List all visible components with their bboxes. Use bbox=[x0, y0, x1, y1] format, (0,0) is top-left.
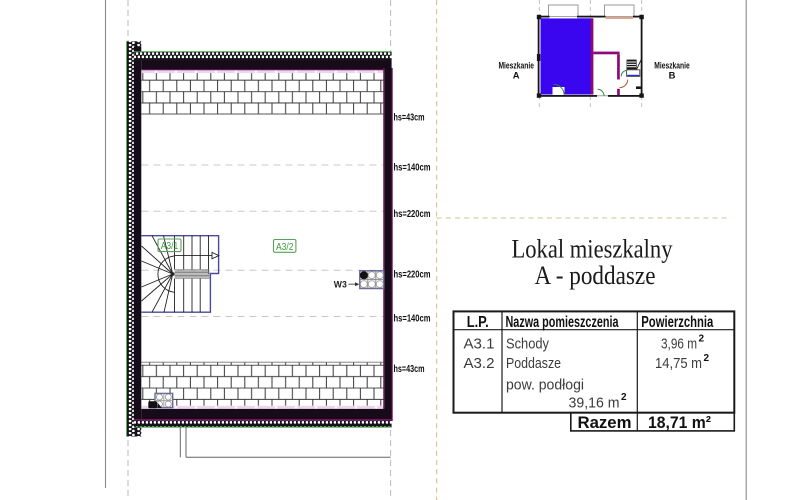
svg-text:hs=43cm: hs=43cm bbox=[394, 364, 425, 375]
svg-text:Nazwa pomieszczenia: Nazwa pomieszczenia bbox=[506, 314, 619, 331]
svg-text:2: 2 bbox=[621, 392, 627, 403]
svg-text:14,75 m: 14,75 m bbox=[655, 355, 702, 372]
svg-text:2: 2 bbox=[699, 334, 705, 345]
svg-text:A - poddasze: A - poddasze bbox=[535, 261, 656, 290]
svg-text:Lokal mieszkalny: Lokal mieszkalny bbox=[512, 234, 673, 263]
svg-text:hs=220cm: hs=220cm bbox=[394, 270, 431, 281]
svg-text:B: B bbox=[669, 70, 676, 81]
svg-text:hs=140cm: hs=140cm bbox=[394, 314, 431, 325]
svg-text:Schody: Schody bbox=[506, 336, 549, 353]
svg-text:W3: W3 bbox=[334, 279, 347, 290]
svg-text:Poddasze: Poddasze bbox=[506, 355, 561, 372]
svg-text:3,96 m: 3,96 m bbox=[661, 336, 697, 353]
svg-text:18,71 m²: 18,71 m² bbox=[648, 413, 711, 432]
svg-text:Razem: Razem bbox=[578, 413, 632, 432]
svg-text:Mieszkanie: Mieszkanie bbox=[654, 59, 690, 70]
svg-text:Mieszkanie: Mieszkanie bbox=[498, 59, 534, 70]
svg-text:A3/1: A3/1 bbox=[161, 241, 179, 252]
svg-text:hs=43cm: hs=43cm bbox=[394, 113, 425, 124]
svg-text:hs=140cm: hs=140cm bbox=[394, 163, 431, 174]
svg-text:L.P.: L.P. bbox=[467, 314, 489, 331]
svg-text:A3.2: A3.2 bbox=[464, 355, 495, 372]
svg-text:A3/2: A3/2 bbox=[276, 242, 294, 253]
svg-text:39,16 m: 39,16 m bbox=[569, 394, 620, 411]
svg-text:2: 2 bbox=[704, 353, 710, 364]
svg-text:hs=220cm: hs=220cm bbox=[394, 209, 431, 220]
svg-text:A3.1: A3.1 bbox=[464, 336, 495, 353]
svg-text:pow. podłogi: pow. podłogi bbox=[506, 377, 584, 394]
svg-text:Powierzchnia: Powierzchnia bbox=[641, 314, 713, 331]
svg-text:A: A bbox=[513, 70, 520, 81]
